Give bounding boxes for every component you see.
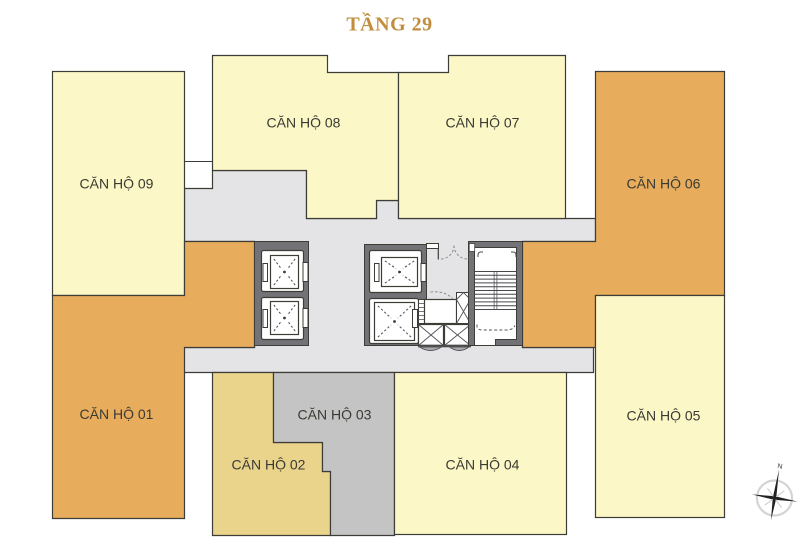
svg-text:CĂN HỘ 05: CĂN HỘ 05 xyxy=(627,408,701,424)
svg-text:CĂN HỘ 03: CĂN HỘ 03 xyxy=(298,407,372,423)
svg-text:CĂN HỘ 06: CĂN HỘ 06 xyxy=(627,176,701,192)
svg-text:CĂN HỘ 04: CĂN HỘ 04 xyxy=(446,457,520,473)
svg-text:CĂN HỘ 09: CĂN HỘ 09 xyxy=(80,176,154,192)
svg-text:CĂN HỘ 02: CĂN HỘ 02 xyxy=(232,457,306,473)
svg-text:CĂN HỘ 08: CĂN HỘ 08 xyxy=(267,115,341,131)
svg-text:TẦNG 29: TẦNG 29 xyxy=(346,12,432,36)
svg-text:CĂN HỘ 01: CĂN HỘ 01 xyxy=(80,406,154,422)
svg-text:N: N xyxy=(777,463,783,471)
svg-text:CĂN HỘ 07: CĂN HỘ 07 xyxy=(446,115,520,131)
